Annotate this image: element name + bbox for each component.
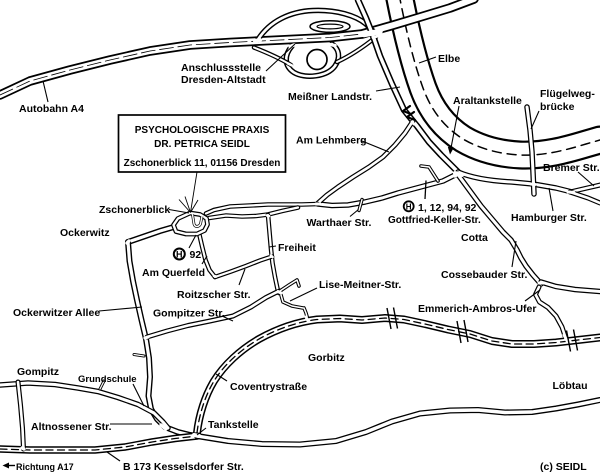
svg-text:Am Lehmberg: Am Lehmberg	[296, 135, 367, 147]
svg-text:Dresden-Altstadt: Dresden-Altstadt	[181, 74, 266, 86]
svg-text:Flügelweg-: Flügelweg-	[540, 88, 595, 100]
svg-text:B 173 Kesselsdorfer Str.: B 173 Kesselsdorfer Str.	[123, 461, 244, 473]
svg-text:PSYCHOLOGISCHE PRAXIS: PSYCHOLOGISCHE PRAXIS	[135, 125, 270, 136]
svg-text:Altnossener Str.: Altnossener Str.	[31, 421, 112, 433]
svg-text:Zschonerblick: Zschonerblick	[99, 204, 170, 216]
svg-text:Roitzscher Str.: Roitzscher Str.	[177, 289, 251, 301]
svg-text:Grundschule: Grundschule	[78, 374, 137, 385]
svg-text:Cotta: Cotta	[461, 232, 488, 244]
svg-text:Gompitz: Gompitz	[17, 366, 59, 378]
svg-text:92: 92	[190, 249, 202, 261]
svg-text:Tankstelle: Tankstelle	[208, 419, 259, 431]
svg-text:Gorbitz: Gorbitz	[308, 352, 345, 364]
svg-text:1, 12, 94, 92: 1, 12, 94, 92	[418, 202, 477, 214]
svg-text:brücke: brücke	[540, 101, 575, 113]
svg-text:Coventrystraße: Coventrystraße	[230, 381, 307, 393]
svg-text:Freiheit: Freiheit	[278, 242, 316, 254]
svg-text:Löbtau: Löbtau	[553, 380, 588, 392]
svg-text:(c) SEIDL: (c) SEIDL	[540, 461, 587, 473]
svg-text:Autobahn A4: Autobahn A4	[19, 103, 84, 115]
svg-text:Am Querfeld: Am Querfeld	[142, 267, 205, 279]
svg-text:Gompitzer Str.: Gompitzer Str.	[153, 308, 225, 320]
svg-text:Richtung A17: Richtung A17	[16, 462, 74, 472]
svg-text:H: H	[406, 202, 412, 211]
svg-text:Emmerich-Ambros-Ufer: Emmerich-Ambros-Ufer	[418, 303, 536, 315]
svg-text:H: H	[176, 249, 183, 259]
svg-text:Ockerwitzer Allee: Ockerwitzer Allee	[13, 307, 100, 319]
svg-text:DR. PETRICA SEIDL: DR. PETRICA SEIDL	[154, 139, 250, 150]
svg-text:Cossebauder Str.: Cossebauder Str.	[441, 269, 527, 281]
svg-text:Meißner Landstr.: Meißner Landstr.	[288, 91, 372, 103]
svg-text:Ockerwitz: Ockerwitz	[60, 227, 110, 239]
svg-text:Elbe: Elbe	[438, 53, 460, 65]
svg-text:Hamburger Str.: Hamburger Str.	[511, 212, 587, 224]
svg-text:Anschlussstelle: Anschlussstelle	[181, 62, 261, 74]
svg-text:Gottfried-Keller-Str.: Gottfried-Keller-Str.	[388, 215, 481, 226]
svg-text:Warthaer Str.: Warthaer Str.	[307, 217, 372, 229]
svg-text:Lise-Meitner-Str.: Lise-Meitner-Str.	[319, 279, 401, 291]
svg-text:Bremer Str.: Bremer Str.	[543, 162, 600, 174]
svg-text:Araltankstelle: Araltankstelle	[453, 95, 522, 107]
svg-text:Zschonerblick 11, 01156 Dresde: Zschonerblick 11, 01156 Dresden	[124, 158, 281, 169]
